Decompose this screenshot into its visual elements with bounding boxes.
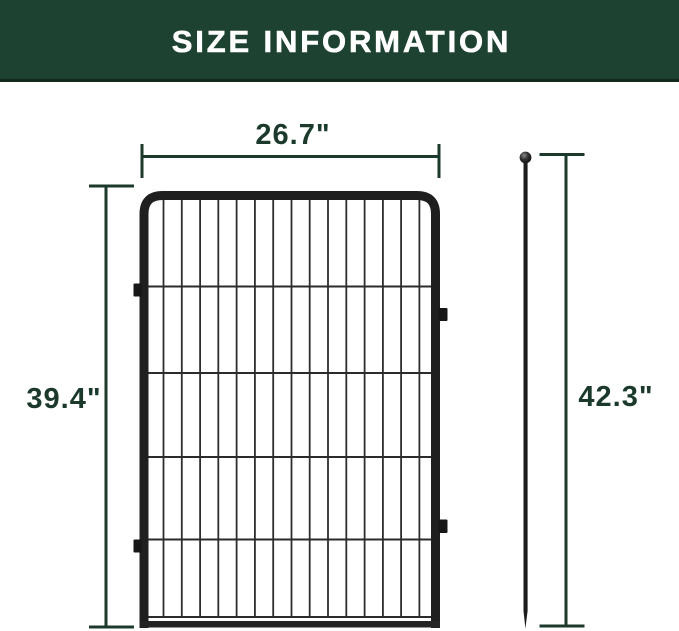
svg-text:39.4": 39.4" bbox=[26, 383, 101, 415]
svg-text:26.7": 26.7" bbox=[255, 119, 330, 151]
svg-text:42.3": 42.3" bbox=[578, 381, 653, 413]
